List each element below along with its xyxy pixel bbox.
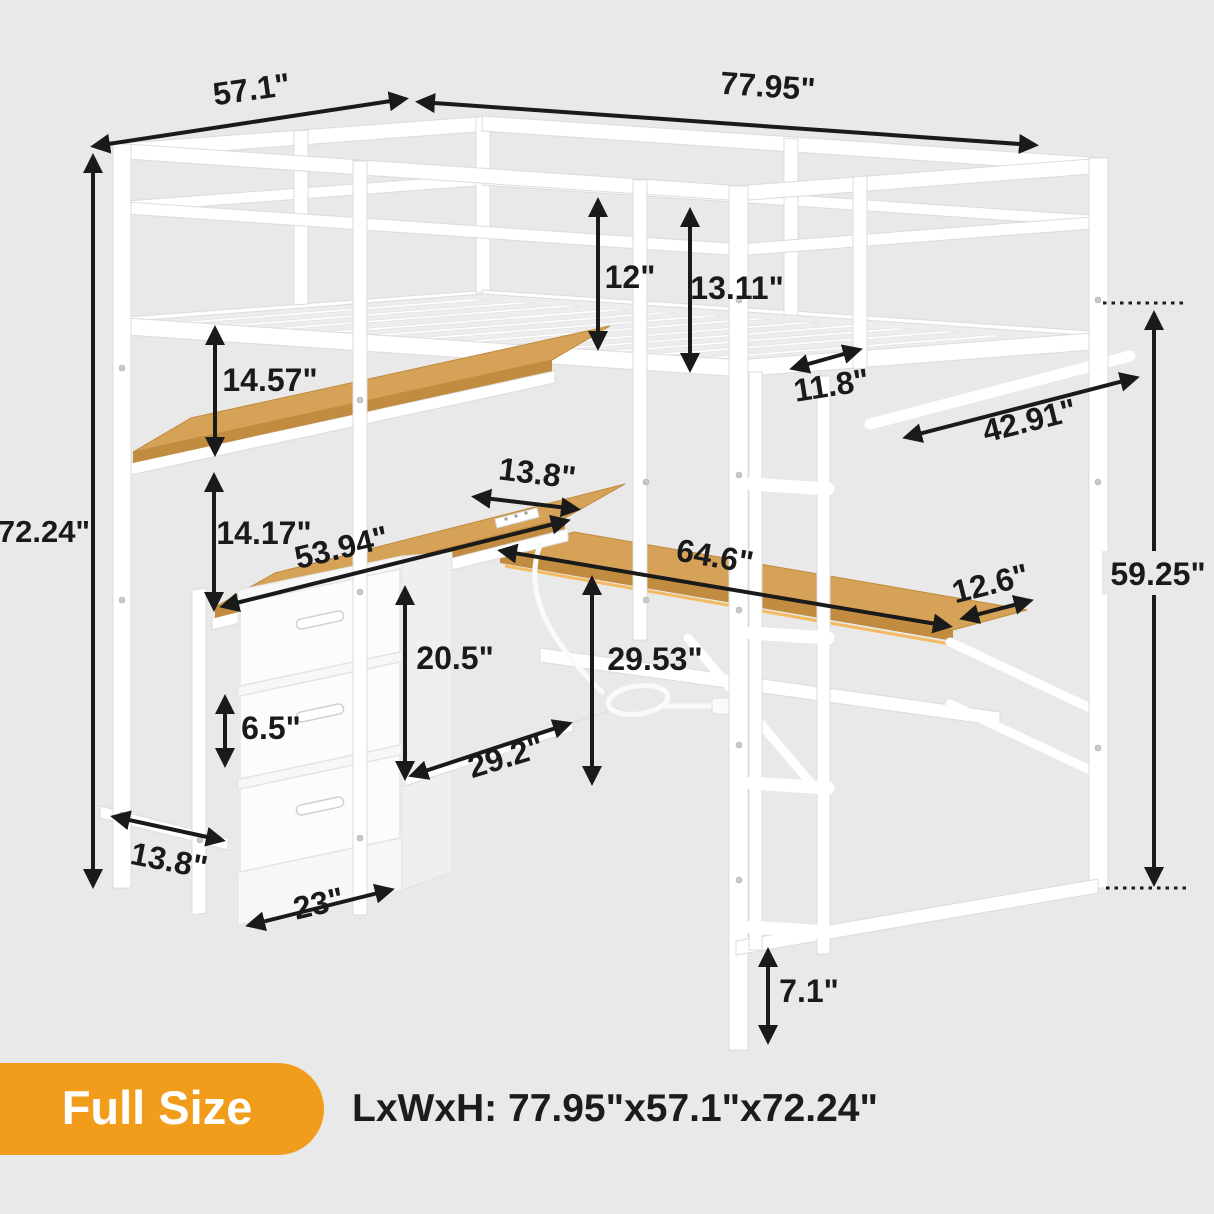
dim-label-top-width: 57.1" [211,66,293,112]
dim-label-under-bed: 59.25" [1110,556,1205,592]
dim-label-guardrail-front: 12" [605,259,656,295]
dim-label-under-bed-group: 59.25" [1102,551,1214,595]
ladder [749,372,830,954]
post-mid-front [633,180,647,640]
dim-label-guardrail-side: 13.11" [690,270,783,306]
dim-label-top-length: 77.95" [719,65,817,108]
dim-label-total-height: 72.24" [0,514,90,549]
post-front [729,186,748,1050]
size-badge-label: Full Size [62,1081,253,1134]
dim-label-desk-clearance: 29.53" [607,641,702,677]
dimensions-summary: LxWxH: 77.95"x57.1"x72.24" [352,1087,878,1130]
loft-bed-dimension-diagram: 57.1" 77.95" 72.24" 12" 13.11" 11.8" 14.… [0,0,1214,1214]
dim-label-upper-shelf-gap: 14.57" [222,362,317,398]
size-badge: Full Size [0,1063,324,1155]
base-rail-right [736,879,1098,955]
dim-label-leg-height: 7.1" [779,973,839,1009]
dim-label-desk-corner-depth: 13.8" [497,450,578,495]
dim-label-cubby-height: 20.5" [416,640,493,676]
dim-label-hanging-rod: 42.91" [979,391,1080,449]
post-right [1089,158,1108,888]
post-left [113,144,131,888]
dim-label-drawer-height: 6.5" [241,710,301,746]
dim-label-mesh-shelf: 29.2" [463,728,548,785]
